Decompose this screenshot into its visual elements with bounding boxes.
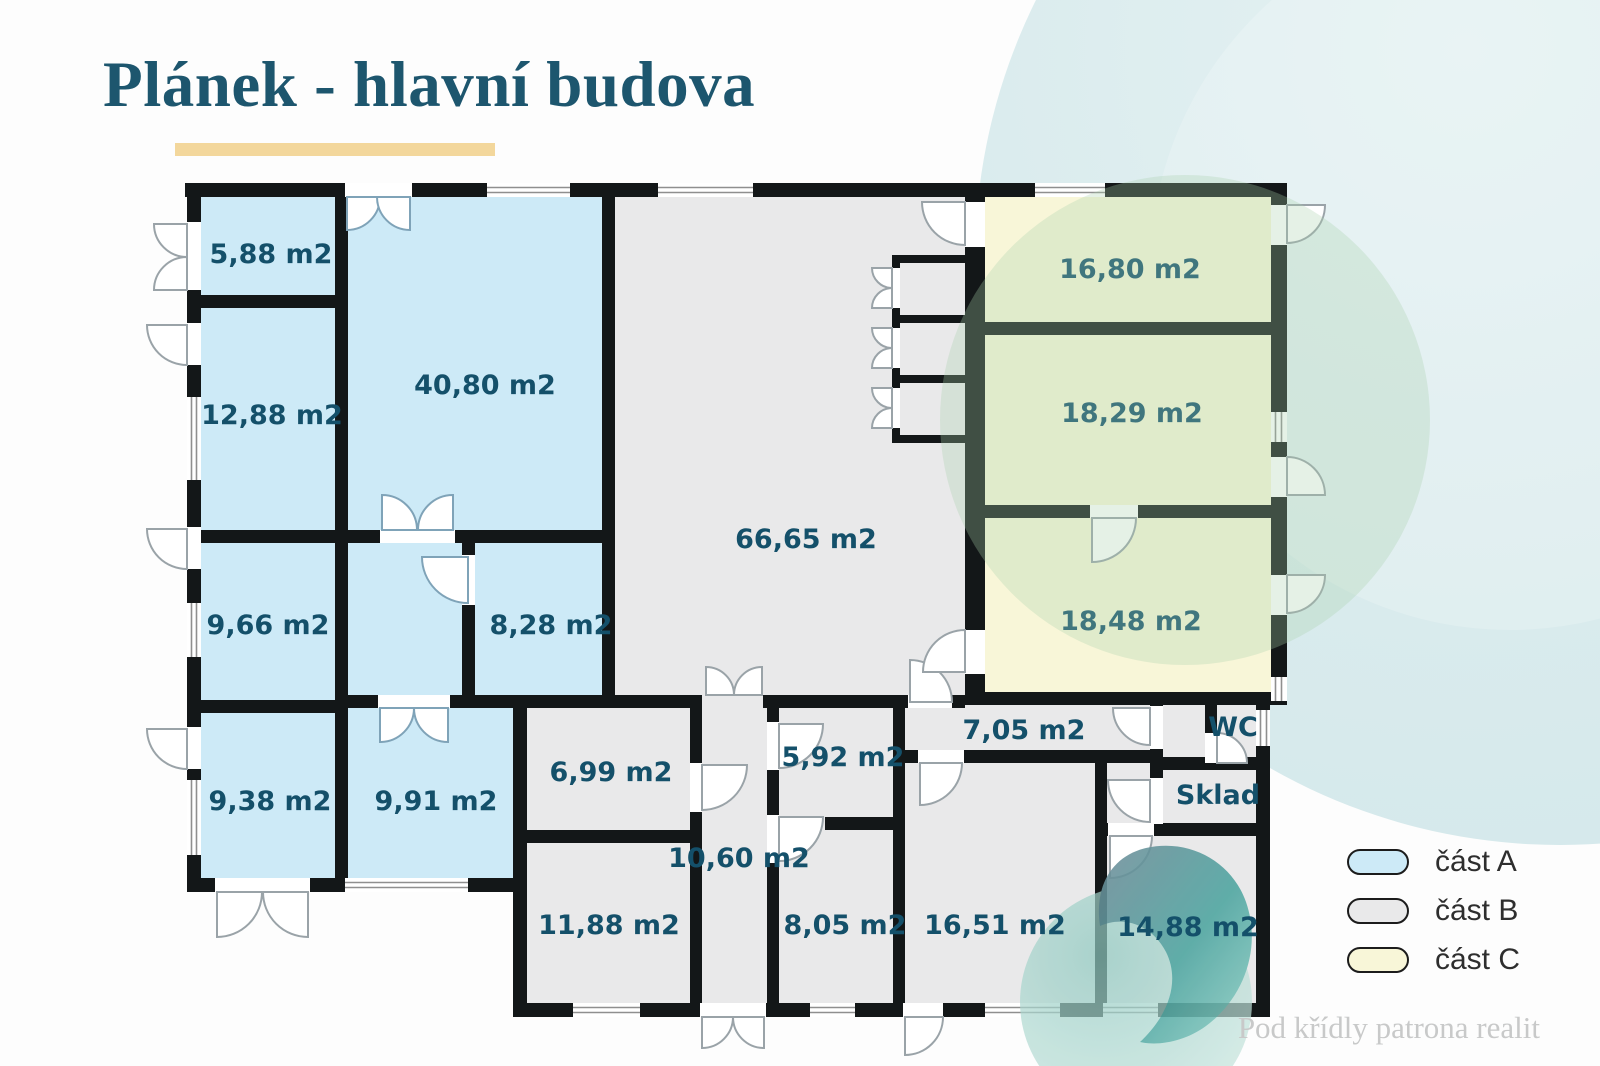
room-area-label: 18,48 m2 (1060, 606, 1202, 637)
room-area-label: 66,65 m2 (735, 524, 877, 555)
legend: část A část B část C (1347, 845, 1520, 977)
legend-item: část B (1347, 894, 1520, 928)
legend-item-label: část A (1435, 845, 1517, 879)
room-area-label: WC (1208, 712, 1258, 743)
legend-item-label: část B (1435, 894, 1518, 928)
legend-item: část C (1347, 943, 1520, 977)
room-area-label: 40,80 m2 (414, 370, 556, 401)
room-area-label: 9,66 m2 (207, 610, 330, 641)
legend-item: část A (1347, 845, 1520, 879)
room-area-label: 8,05 m2 (784, 910, 907, 941)
room-area-label: 16,80 m2 (1059, 254, 1201, 285)
legend-swatch-part-b (1347, 898, 1409, 924)
room-area-label: 8,28 m2 (490, 610, 613, 641)
legend-swatch-part-a (1347, 849, 1409, 875)
room-area-label: 10,60 m2 (668, 843, 810, 874)
legend-item-label: část C (1435, 943, 1520, 977)
room-area-label: 5,92 m2 (782, 742, 905, 773)
room-area-label: 7,05 m2 (963, 715, 1086, 746)
page-title: Plánek - hlavní budova (103, 48, 755, 123)
room-area-label: Sklad (1176, 780, 1260, 811)
room-fill (608, 190, 973, 702)
room-area-label: 16,51 m2 (924, 910, 1066, 941)
room-area-label: 18,29 m2 (1061, 398, 1203, 429)
title-underline (175, 143, 495, 156)
room-area-label: 12,88 m2 (201, 400, 343, 431)
room-area-label: 11,88 m2 (538, 910, 680, 941)
room-area-label: 14,88 m2 (1117, 912, 1259, 943)
room-area-label: 9,91 m2 (375, 786, 498, 817)
legend-swatch-part-c (1347, 947, 1409, 973)
room-area-label: 6,99 m2 (550, 757, 673, 788)
room-area-label: 9,38 m2 (209, 786, 332, 817)
watermark: Pod křídly patrona realit (1238, 1010, 1540, 1046)
room-fill (340, 190, 610, 540)
room-area-label: 5,88 m2 (210, 239, 333, 270)
